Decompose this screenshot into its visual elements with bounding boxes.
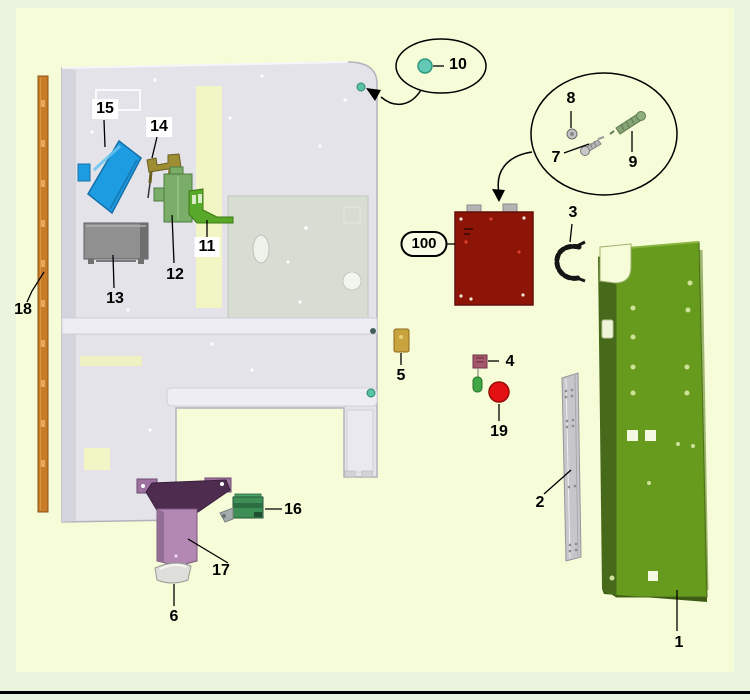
leader-3 <box>570 224 572 242</box>
callout-15[interactable]: 15 <box>92 99 118 119</box>
callout-11[interactable]: 11 <box>195 237 220 257</box>
part-19-red-knob <box>489 382 509 402</box>
part-18-brown-rail <box>38 76 48 512</box>
part-6-white-scoop <box>155 563 191 583</box>
callout-12[interactable]: 12 <box>166 266 184 284</box>
callout-3[interactable]: 3 <box>569 204 578 222</box>
callout-14[interactable]: 14 <box>146 117 172 137</box>
callout-13[interactable]: 13 <box>106 290 124 308</box>
callout-4[interactable]: 4 <box>506 353 515 371</box>
part-3-black-clip <box>557 242 585 281</box>
diagram-stage: 1 2 3 4 5 6 7 8 9 10 11 12 13 14 15 16 1… <box>0 0 750 700</box>
part-8-nut <box>567 129 577 139</box>
part-5-tan-block <box>394 329 409 352</box>
callout-1[interactable]: 1 <box>675 634 684 652</box>
callout-17[interactable]: 17 <box>212 562 230 580</box>
part-4-pink-block <box>473 355 487 392</box>
part-10-teal-plug <box>418 59 432 73</box>
part-2-gray-rail <box>562 373 581 561</box>
part-17-purple-hopper <box>137 478 231 566</box>
bottom-rule <box>0 691 750 694</box>
callout-100[interactable]: 100 <box>400 231 447 257</box>
callout-8[interactable]: 8 <box>567 90 576 108</box>
callout-2[interactable]: 2 <box>536 494 545 512</box>
callout-5[interactable]: 5 <box>397 367 406 385</box>
callout-10[interactable]: 10 <box>449 56 467 74</box>
callout-7[interactable]: 7 <box>552 149 561 167</box>
callout-6[interactable]: 6 <box>170 608 179 626</box>
part-9-green-screw <box>610 112 646 135</box>
callout-19[interactable]: 19 <box>490 423 508 441</box>
part-13-gray-box <box>84 223 148 264</box>
detail-ellipse-789 <box>492 73 677 202</box>
callout-9[interactable]: 9 <box>629 154 638 172</box>
callout-16[interactable]: 16 <box>284 501 302 519</box>
callout-18[interactable]: 18 <box>14 301 32 319</box>
part-1-green-cabinet <box>598 242 707 602</box>
part-16-green-block <box>220 494 263 522</box>
part-100-red-module <box>455 204 533 305</box>
